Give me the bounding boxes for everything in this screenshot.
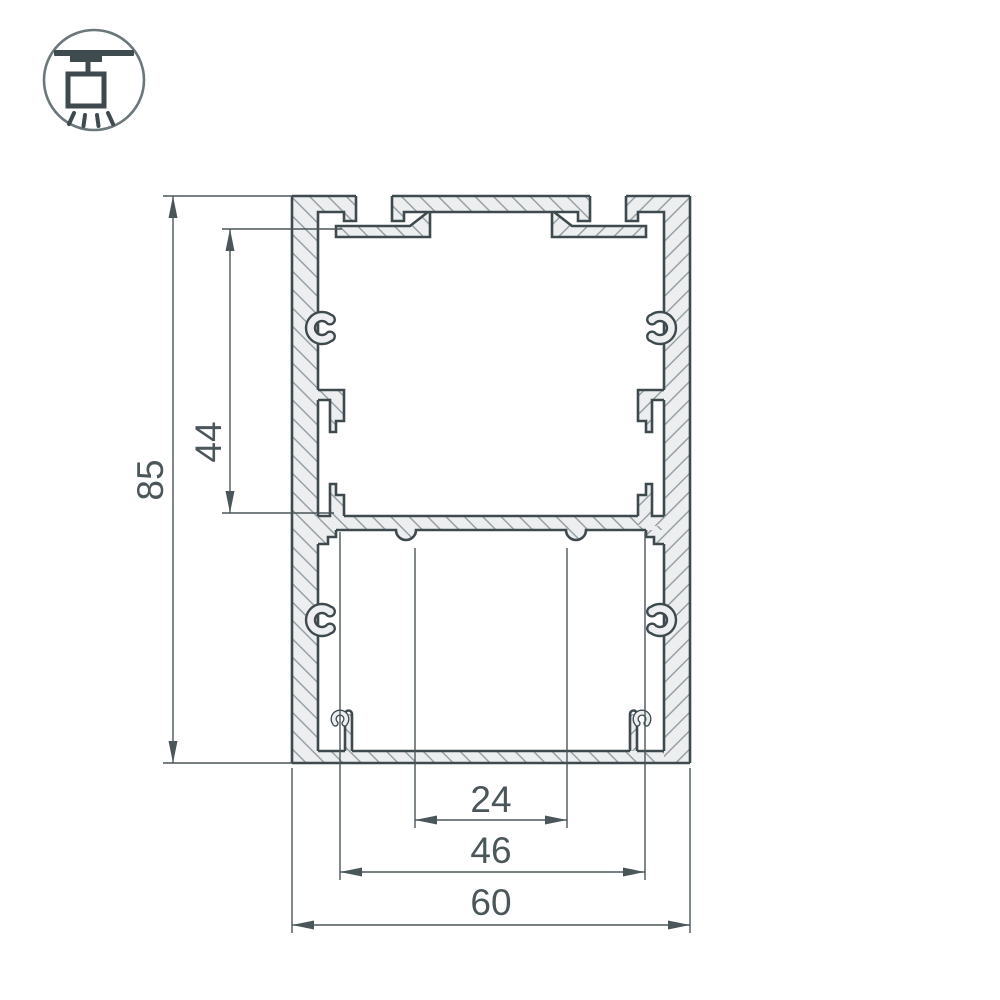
technical-drawing-page: 85 44 24 46 60 (0, 0, 1000, 1000)
dimension-lines (163, 196, 690, 933)
profile-cross-section-drawing: 85 44 24 46 60 (0, 0, 1000, 1000)
dimension-arrows (169, 196, 691, 930)
dimension-cavity-height: 44 (188, 421, 229, 462)
profile-outline-center (292, 196, 690, 763)
dimension-inner-width: 46 (470, 830, 511, 871)
dimension-overall-height: 85 (130, 459, 171, 500)
aluminum-profile-body (292, 196, 690, 763)
metal-fill-center (292, 196, 690, 763)
dimension-hole-spacing: 24 (470, 779, 511, 820)
dimension-overall-width: 60 (470, 882, 511, 923)
dimension-labels: 85 44 24 46 60 (130, 421, 512, 923)
surface-mounted-ceiling-light-icon (44, 30, 144, 130)
